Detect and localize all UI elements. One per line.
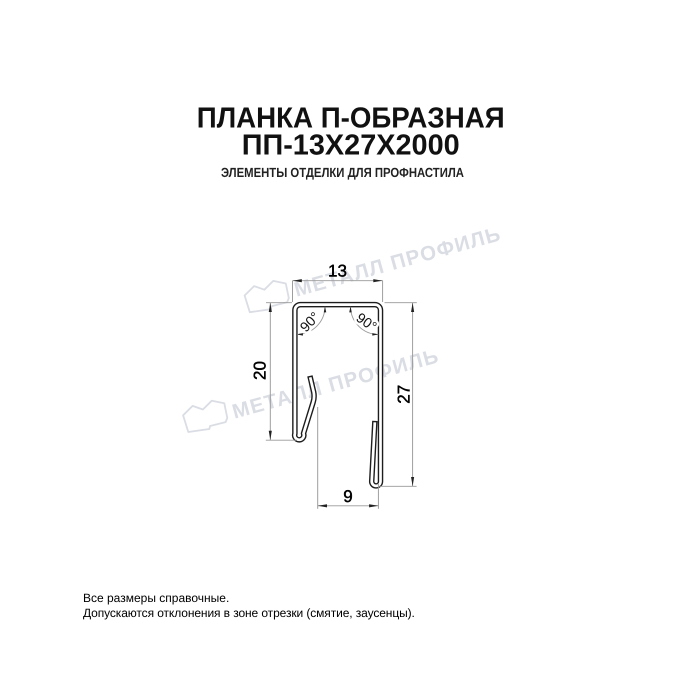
svg-text:9: 9 <box>343 487 352 506</box>
svg-text:Допускаются отклонения в зоне: Допускаются отклонения в зоне отрезки (с… <box>83 606 415 620</box>
svg-text:20: 20 <box>251 361 270 380</box>
svg-text:27: 27 <box>394 385 413 404</box>
svg-text:13: 13 <box>328 261 347 280</box>
svg-text:ПП-13Х27Х2000: ПП-13Х27Х2000 <box>242 130 460 162</box>
svg-text:Все размеры справочные.: Все размеры справочные. <box>83 591 229 605</box>
svg-text:90°: 90° <box>296 309 322 335</box>
svg-text:90°: 90° <box>353 309 380 334</box>
svg-text:МЕТАЛЛ ПРОФИЛЬ: МЕТАЛЛ ПРОФИЛЬ <box>292 222 504 301</box>
svg-text:МЕТАЛЛ ПРОФИЛЬ: МЕТАЛЛ ПРОФИЛЬ <box>230 344 442 423</box>
svg-text:ЭЛЕМЕНТЫ ОТДЕЛКИ ДЛЯ ПРОФНАСТИ: ЭЛЕМЕНТЫ ОТДЕЛКИ ДЛЯ ПРОФНАСТИЛА <box>221 165 464 180</box>
